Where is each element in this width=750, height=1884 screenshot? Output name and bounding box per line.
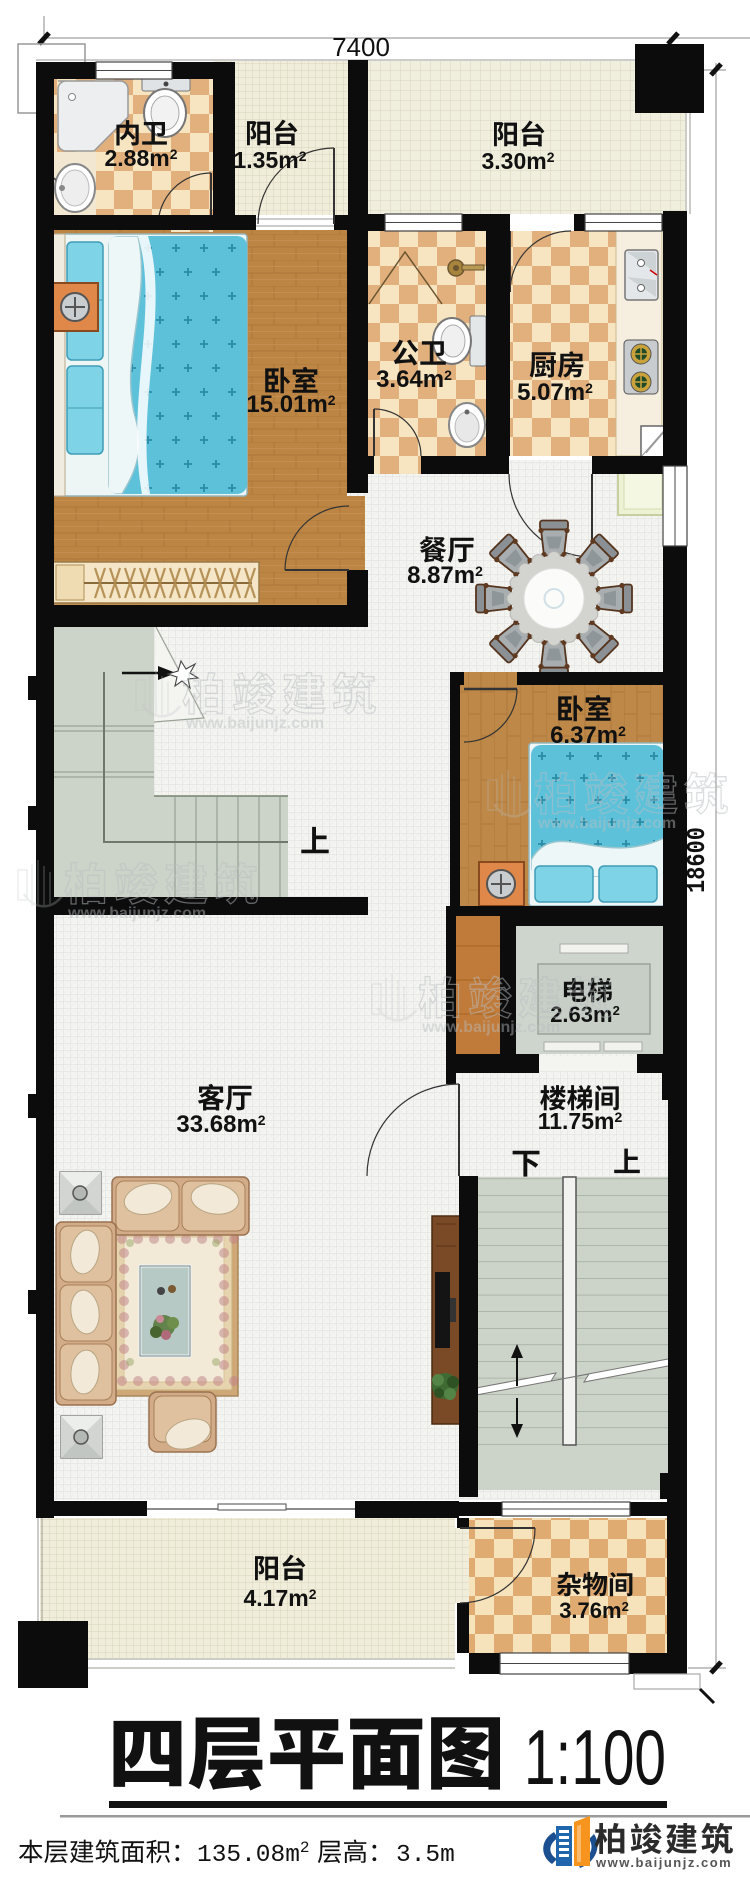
svg-text:33.68m2: 33.68m2: [176, 1111, 265, 1138]
svg-text:3.5m: 3.5m: [396, 1842, 455, 1869]
svg-text:www.baijunjz.com: www.baijunjz.com: [595, 1855, 732, 1870]
svg-text:www.baijunjz.com: www.baijunjz.com: [537, 815, 676, 832]
svg-text:2.88m2: 2.88m2: [104, 145, 177, 171]
svg-text:www.baijunjz.com: www.baijunjz.com: [67, 905, 206, 922]
svg-text:www.baijunjz.com: www.baijunjz.com: [185, 715, 324, 732]
svg-text:3.30m2: 3.30m2: [481, 148, 554, 174]
svg-text:135.08m2: 135.08m2: [197, 1839, 310, 1869]
svg-text:7400: 7400: [332, 32, 390, 62]
svg-text:4.17m2: 4.17m2: [243, 1585, 316, 1611]
svg-text:2.63m2: 2.63m2: [550, 1002, 620, 1027]
svg-text:www.baijunjz.com: www.baijunjz.com: [421, 1019, 560, 1036]
svg-text:5.07m2: 5.07m2: [517, 379, 593, 406]
svg-text:1:100: 1:100: [524, 1713, 666, 1801]
svg-text:3.64m2: 3.64m2: [376, 366, 452, 393]
svg-text:6.37m2: 6.37m2: [550, 722, 626, 749]
svg-text:1.35m2: 1.35m2: [233, 147, 306, 173]
svg-text:8.87m2: 8.87m2: [407, 562, 483, 589]
svg-text:15.01m2: 15.01m2: [246, 391, 335, 418]
svg-text:11.75m2: 11.75m2: [538, 1108, 623, 1134]
svg-text:3.76m2: 3.76m2: [559, 1598, 629, 1623]
